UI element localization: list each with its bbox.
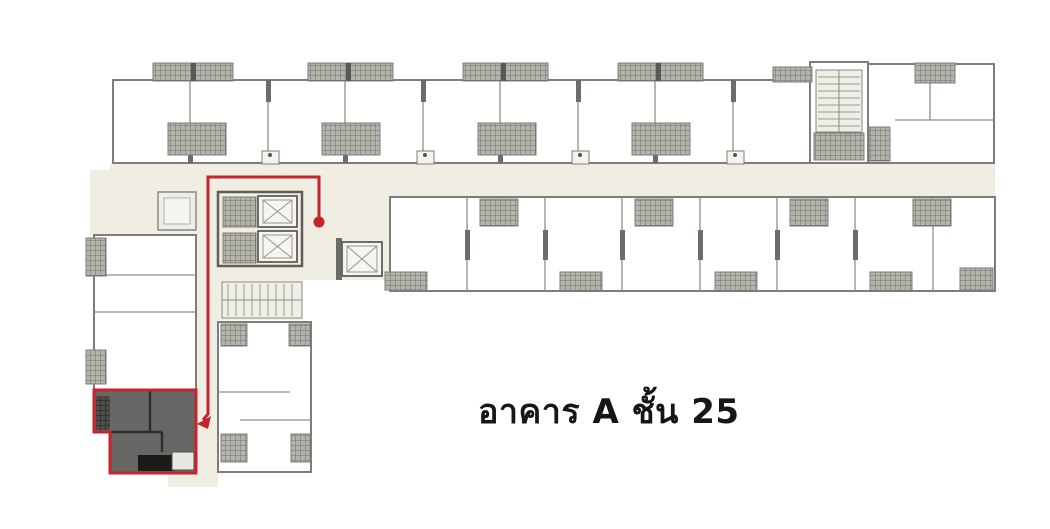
floor-plan-image: อาคาร A ชั้น 25 [0, 0, 1050, 529]
door-icon [572, 151, 589, 164]
stairs-icon [222, 282, 302, 318]
lift-icon [258, 231, 297, 262]
stairs-icon [816, 70, 862, 132]
highlighted-unit[interactable] [94, 390, 196, 473]
door-icon [727, 151, 744, 164]
lift-icon [258, 196, 297, 227]
floor-label: อาคาร A ชั้น 25 [478, 384, 738, 430]
lift-icon [336, 238, 382, 280]
highlighted-unit-balcony [96, 396, 110, 430]
floor-plan-svg [0, 0, 1050, 529]
highlighted-unit-bath [172, 452, 194, 470]
door-icon [262, 151, 279, 164]
service-room [158, 192, 196, 230]
highlighted-unit-detail [138, 455, 174, 471]
door-icon [417, 151, 434, 164]
route-start-dot [314, 217, 325, 228]
